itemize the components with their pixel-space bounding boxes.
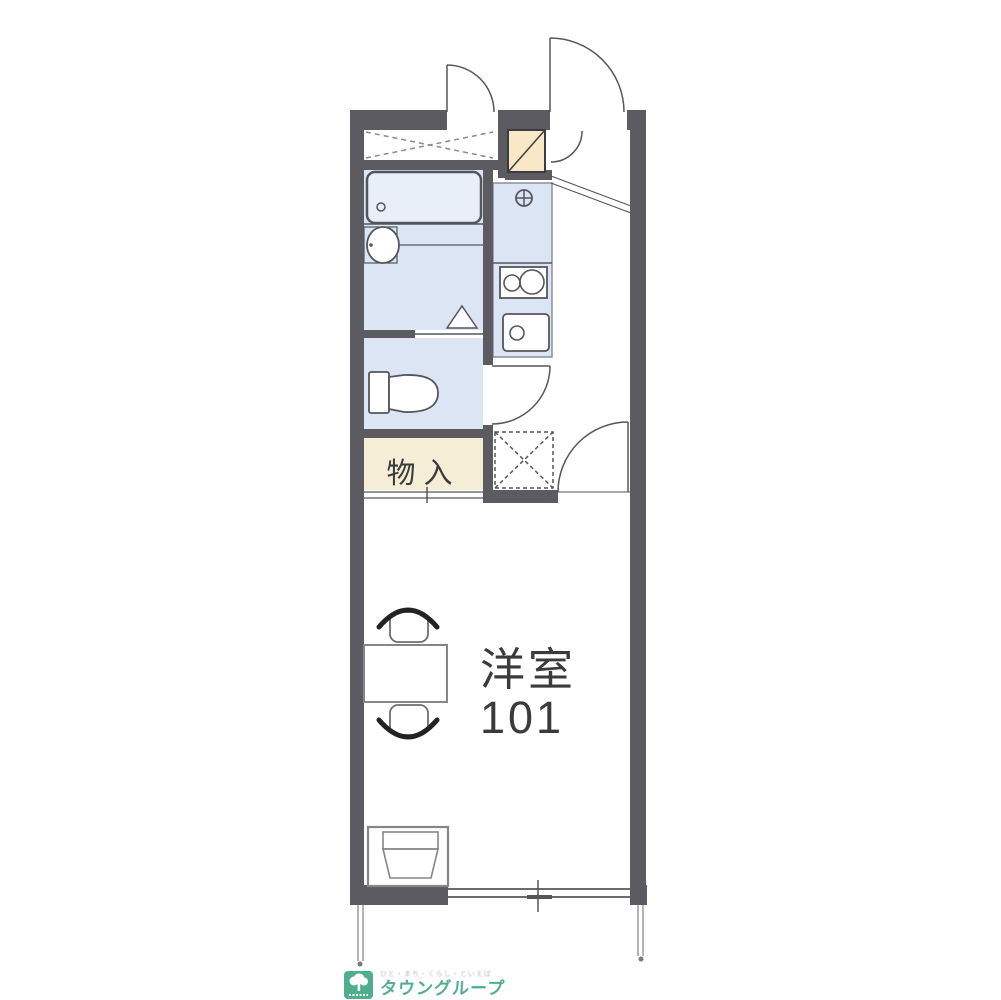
table-with-two-chairs: [364, 610, 447, 737]
kitchen-faucet: [516, 190, 532, 206]
wall-bottom-left: [350, 885, 448, 905]
wall-right: [630, 110, 646, 905]
overhead-storage-dashed-x: [366, 132, 493, 158]
entry-interior-swing: [551, 131, 582, 162]
wall-hall-room: [483, 490, 558, 503]
wall-bottom-right: [630, 885, 647, 905]
toilet-tank: [369, 372, 389, 413]
agency-logo: ひと・まち・くらし・といえば タウングループ: [344, 971, 505, 1000]
tree-icon: [344, 971, 373, 999]
floor-plan-drawing: [0, 0, 1001, 1000]
bathtub: [367, 172, 481, 223]
wall-top-left: [350, 110, 447, 130]
refrigerator-space-dashed-x: [495, 432, 553, 488]
main-room-number: 101: [480, 694, 576, 742]
sliding-window: [448, 880, 630, 912]
washing-machine: [368, 827, 448, 886]
entry-step-edge: [551, 176, 631, 213]
toilet-bowl: [389, 375, 438, 412]
exterior-extension-lines: [358, 905, 644, 967]
main-room-label: 洋室 101: [480, 646, 576, 742]
floor-plan-canvas: 洋室 101 物入 ひと・まち・くらし・といえば タウングループ: [0, 0, 1001, 1000]
washroom-door: [492, 366, 550, 424]
logo-tagline: ひと・まち・くらし・といえば: [380, 971, 505, 979]
main-room-name: 洋室: [480, 646, 576, 694]
two-burner-stove: [500, 267, 547, 298]
toilet: [369, 372, 438, 413]
logo-name: タウングループ: [379, 979, 505, 998]
exterior-storage-door: [447, 65, 494, 112]
table: [364, 645, 447, 702]
utility-box-diagonal: [508, 130, 545, 172]
wall-top-right: [627, 110, 646, 130]
wall-bath-toilet: [364, 330, 415, 338]
wall-left: [350, 110, 364, 905]
wall-toilet-storage: [364, 429, 493, 438]
entry-door: [550, 38, 624, 112]
logo-mark: [344, 971, 373, 999]
kitchen-sink: [503, 314, 549, 351]
wall-mid-vertical-upper: [483, 160, 493, 365]
room-door: [558, 422, 630, 492]
storage-room-label: 物入: [364, 450, 483, 492]
